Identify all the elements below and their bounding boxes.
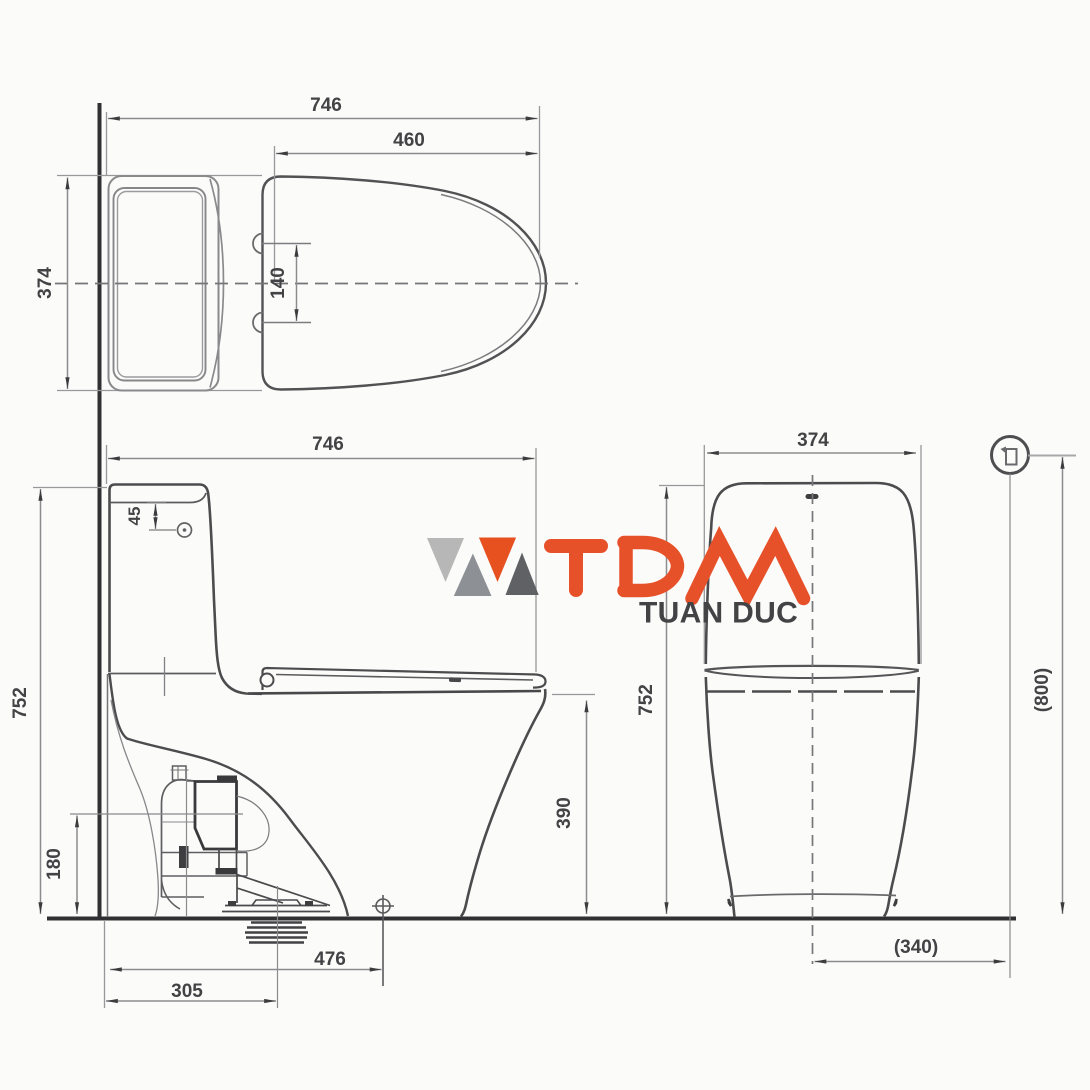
svg-text:752: 752 bbox=[636, 684, 657, 716]
svg-text:746: 746 bbox=[310, 95, 342, 116]
svg-text:460: 460 bbox=[393, 130, 425, 151]
svg-text:140: 140 bbox=[268, 267, 289, 299]
svg-text:(340): (340) bbox=[894, 937, 938, 958]
svg-text:476: 476 bbox=[314, 949, 346, 970]
svg-text:374: 374 bbox=[797, 430, 829, 451]
svg-text:(800): (800) bbox=[1032, 668, 1053, 712]
svg-text:752: 752 bbox=[10, 687, 31, 719]
svg-text:45: 45 bbox=[125, 507, 144, 526]
svg-text:390: 390 bbox=[554, 797, 575, 829]
svg-text:374: 374 bbox=[35, 267, 56, 299]
svg-text:305: 305 bbox=[171, 981, 203, 1002]
svg-text:180: 180 bbox=[44, 848, 65, 880]
svg-text:746: 746 bbox=[312, 434, 344, 455]
svg-text:TUAN DUC: TUAN DUC bbox=[639, 597, 798, 630]
